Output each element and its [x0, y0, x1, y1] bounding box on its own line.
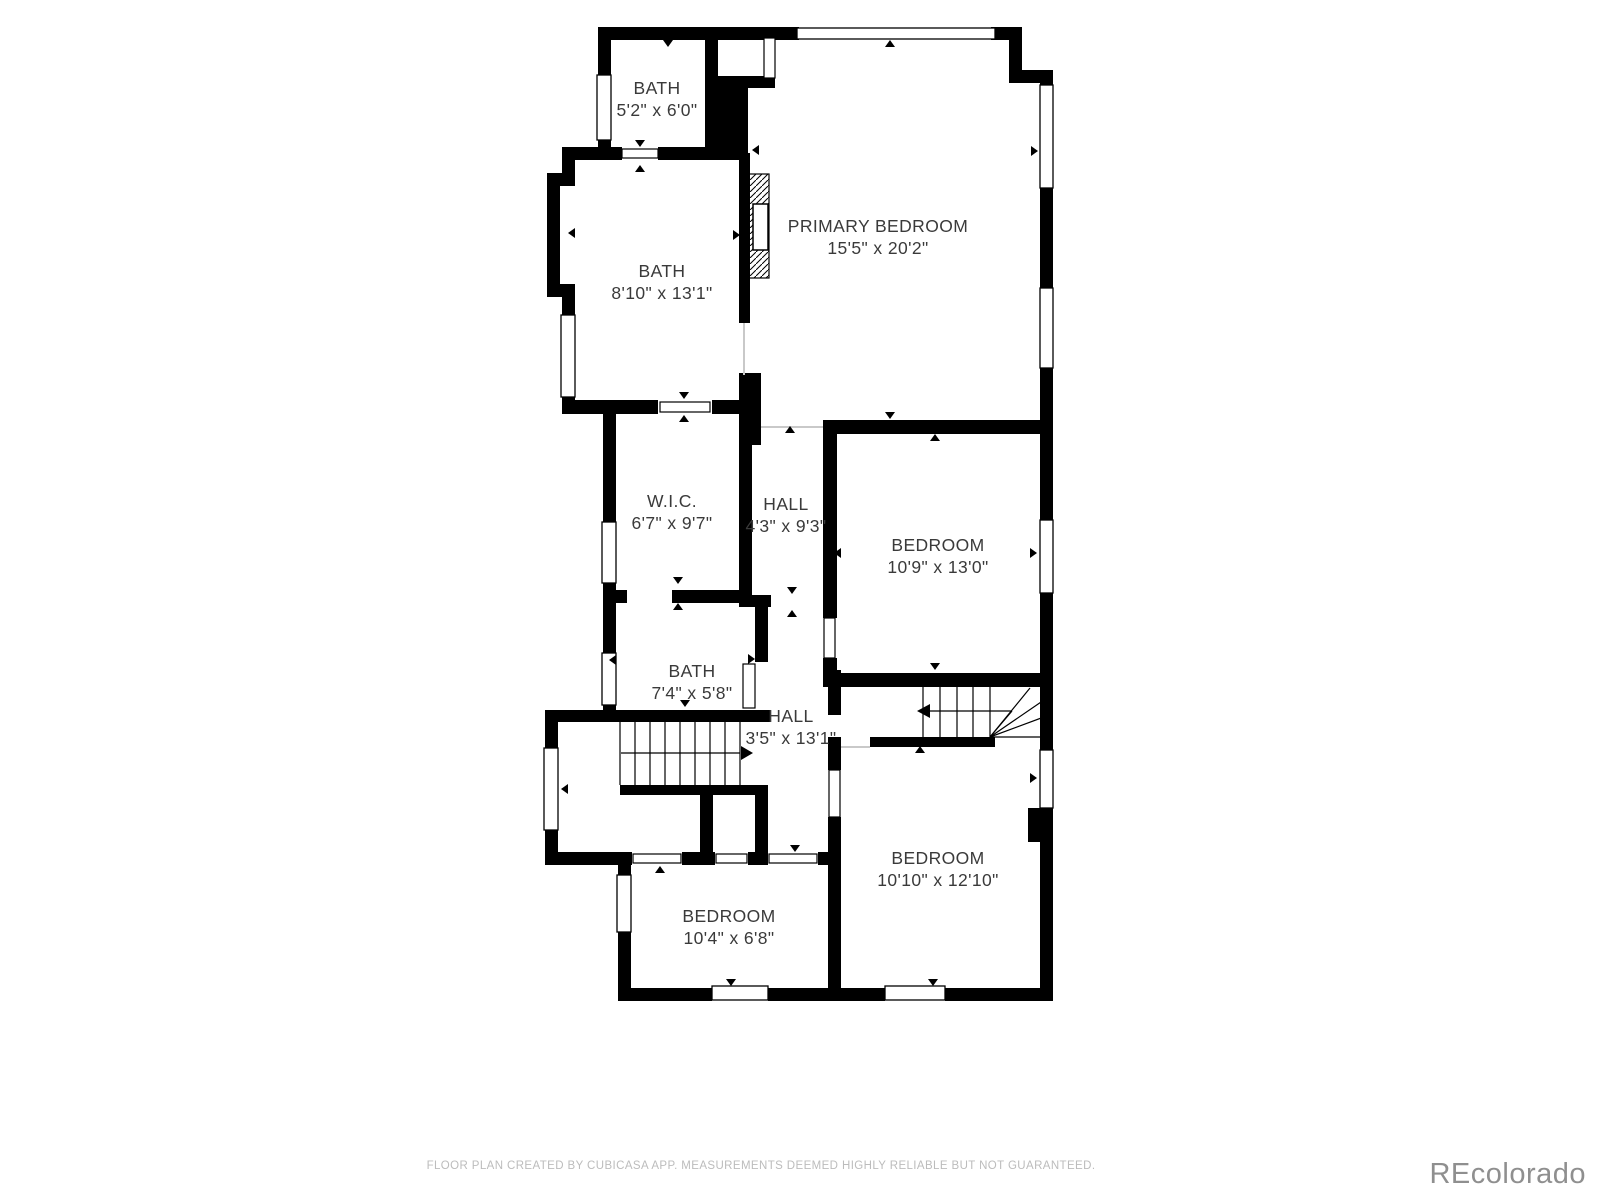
room-name: BEDROOM [891, 848, 984, 868]
room-dimensions: 8'10" x 13'1" [611, 282, 712, 304]
room-label-6: BATH7'4" x 5'8" [652, 660, 733, 704]
room-label-1: BATH8'10" x 13'1" [611, 260, 712, 304]
window-icon [561, 315, 575, 397]
door-icon [743, 664, 755, 708]
room-dimensions: 3'5" x 13'1" [745, 727, 836, 749]
window-icon [1040, 520, 1053, 593]
room-name: BATH [639, 261, 686, 281]
window-icon [617, 875, 631, 932]
room-dimensions: 6'7" x 9'7" [632, 512, 713, 534]
window-icon [1040, 750, 1053, 808]
room-dimensions: 10'4" x 6'8" [682, 927, 775, 949]
door-icon [764, 38, 775, 78]
window-icon [712, 986, 768, 1000]
room-name: BATH [669, 661, 716, 681]
staircase-upper [917, 687, 1052, 737]
room-name: BEDROOM [682, 906, 775, 926]
door-icon [660, 402, 710, 412]
room-dimensions: 10'9" x 13'0" [887, 556, 988, 578]
room-label-2: PRIMARY BEDROOM15'5" x 20'2" [788, 215, 968, 259]
footer-disclaimer: FLOOR PLAN CREATED BY CUBICASA APP. MEAS… [427, 1160, 1096, 1172]
door-icon [829, 770, 840, 817]
room-label-7: HALL3'5" x 13'1" [745, 705, 836, 749]
room-label-5: BEDROOM10'9" x 13'0" [887, 534, 988, 578]
room-name: HALL [763, 494, 808, 514]
room-name: PRIMARY BEDROOM [788, 216, 968, 236]
window-icon [597, 75, 611, 140]
staircase-lower [620, 722, 753, 785]
room-label-9: BEDROOM10'4" x 6'8" [682, 905, 775, 949]
room-name: BEDROOM [891, 535, 984, 555]
window-icon [797, 28, 995, 39]
room-label-4: HALL4'3" x 9'3" [746, 493, 827, 537]
window-icon [1040, 85, 1053, 188]
floor-plan-drawing [0, 0, 1600, 1200]
room-label-0: BATH5'2" x 6'0" [617, 77, 698, 121]
watermark-recolorado: REcolorado [1429, 1158, 1586, 1191]
room-name: HALL [768, 706, 813, 726]
window-icon [544, 748, 558, 830]
room-label-8: BEDROOM10'10" x 12'10" [877, 847, 998, 891]
room-dimensions: 10'10" x 12'10" [877, 869, 998, 891]
door-icon [824, 618, 835, 658]
window-icon [1040, 288, 1053, 368]
room-dimensions: 7'4" x 5'8" [652, 682, 733, 704]
room-name: BATH [634, 78, 681, 98]
room-dimensions: 4'3" x 9'3" [746, 515, 827, 537]
door-icon [622, 149, 658, 158]
door-icon [769, 854, 817, 863]
floor-plan-page: BATH5'2" x 6'0"BATH8'10" x 13'1"PRIMARY … [0, 0, 1600, 1200]
room-dimensions: 5'2" x 6'0" [617, 99, 698, 121]
room-name: W.I.C. [647, 491, 697, 511]
door-icon [716, 854, 747, 863]
room-dimensions: 15'5" x 20'2" [788, 237, 968, 259]
room-label-3: W.I.C.6'7" x 9'7" [632, 490, 713, 534]
window-icon [602, 522, 616, 583]
sliding-door-icon [748, 174, 769, 278]
window-icon [885, 986, 945, 1000]
door-icon [633, 854, 681, 863]
